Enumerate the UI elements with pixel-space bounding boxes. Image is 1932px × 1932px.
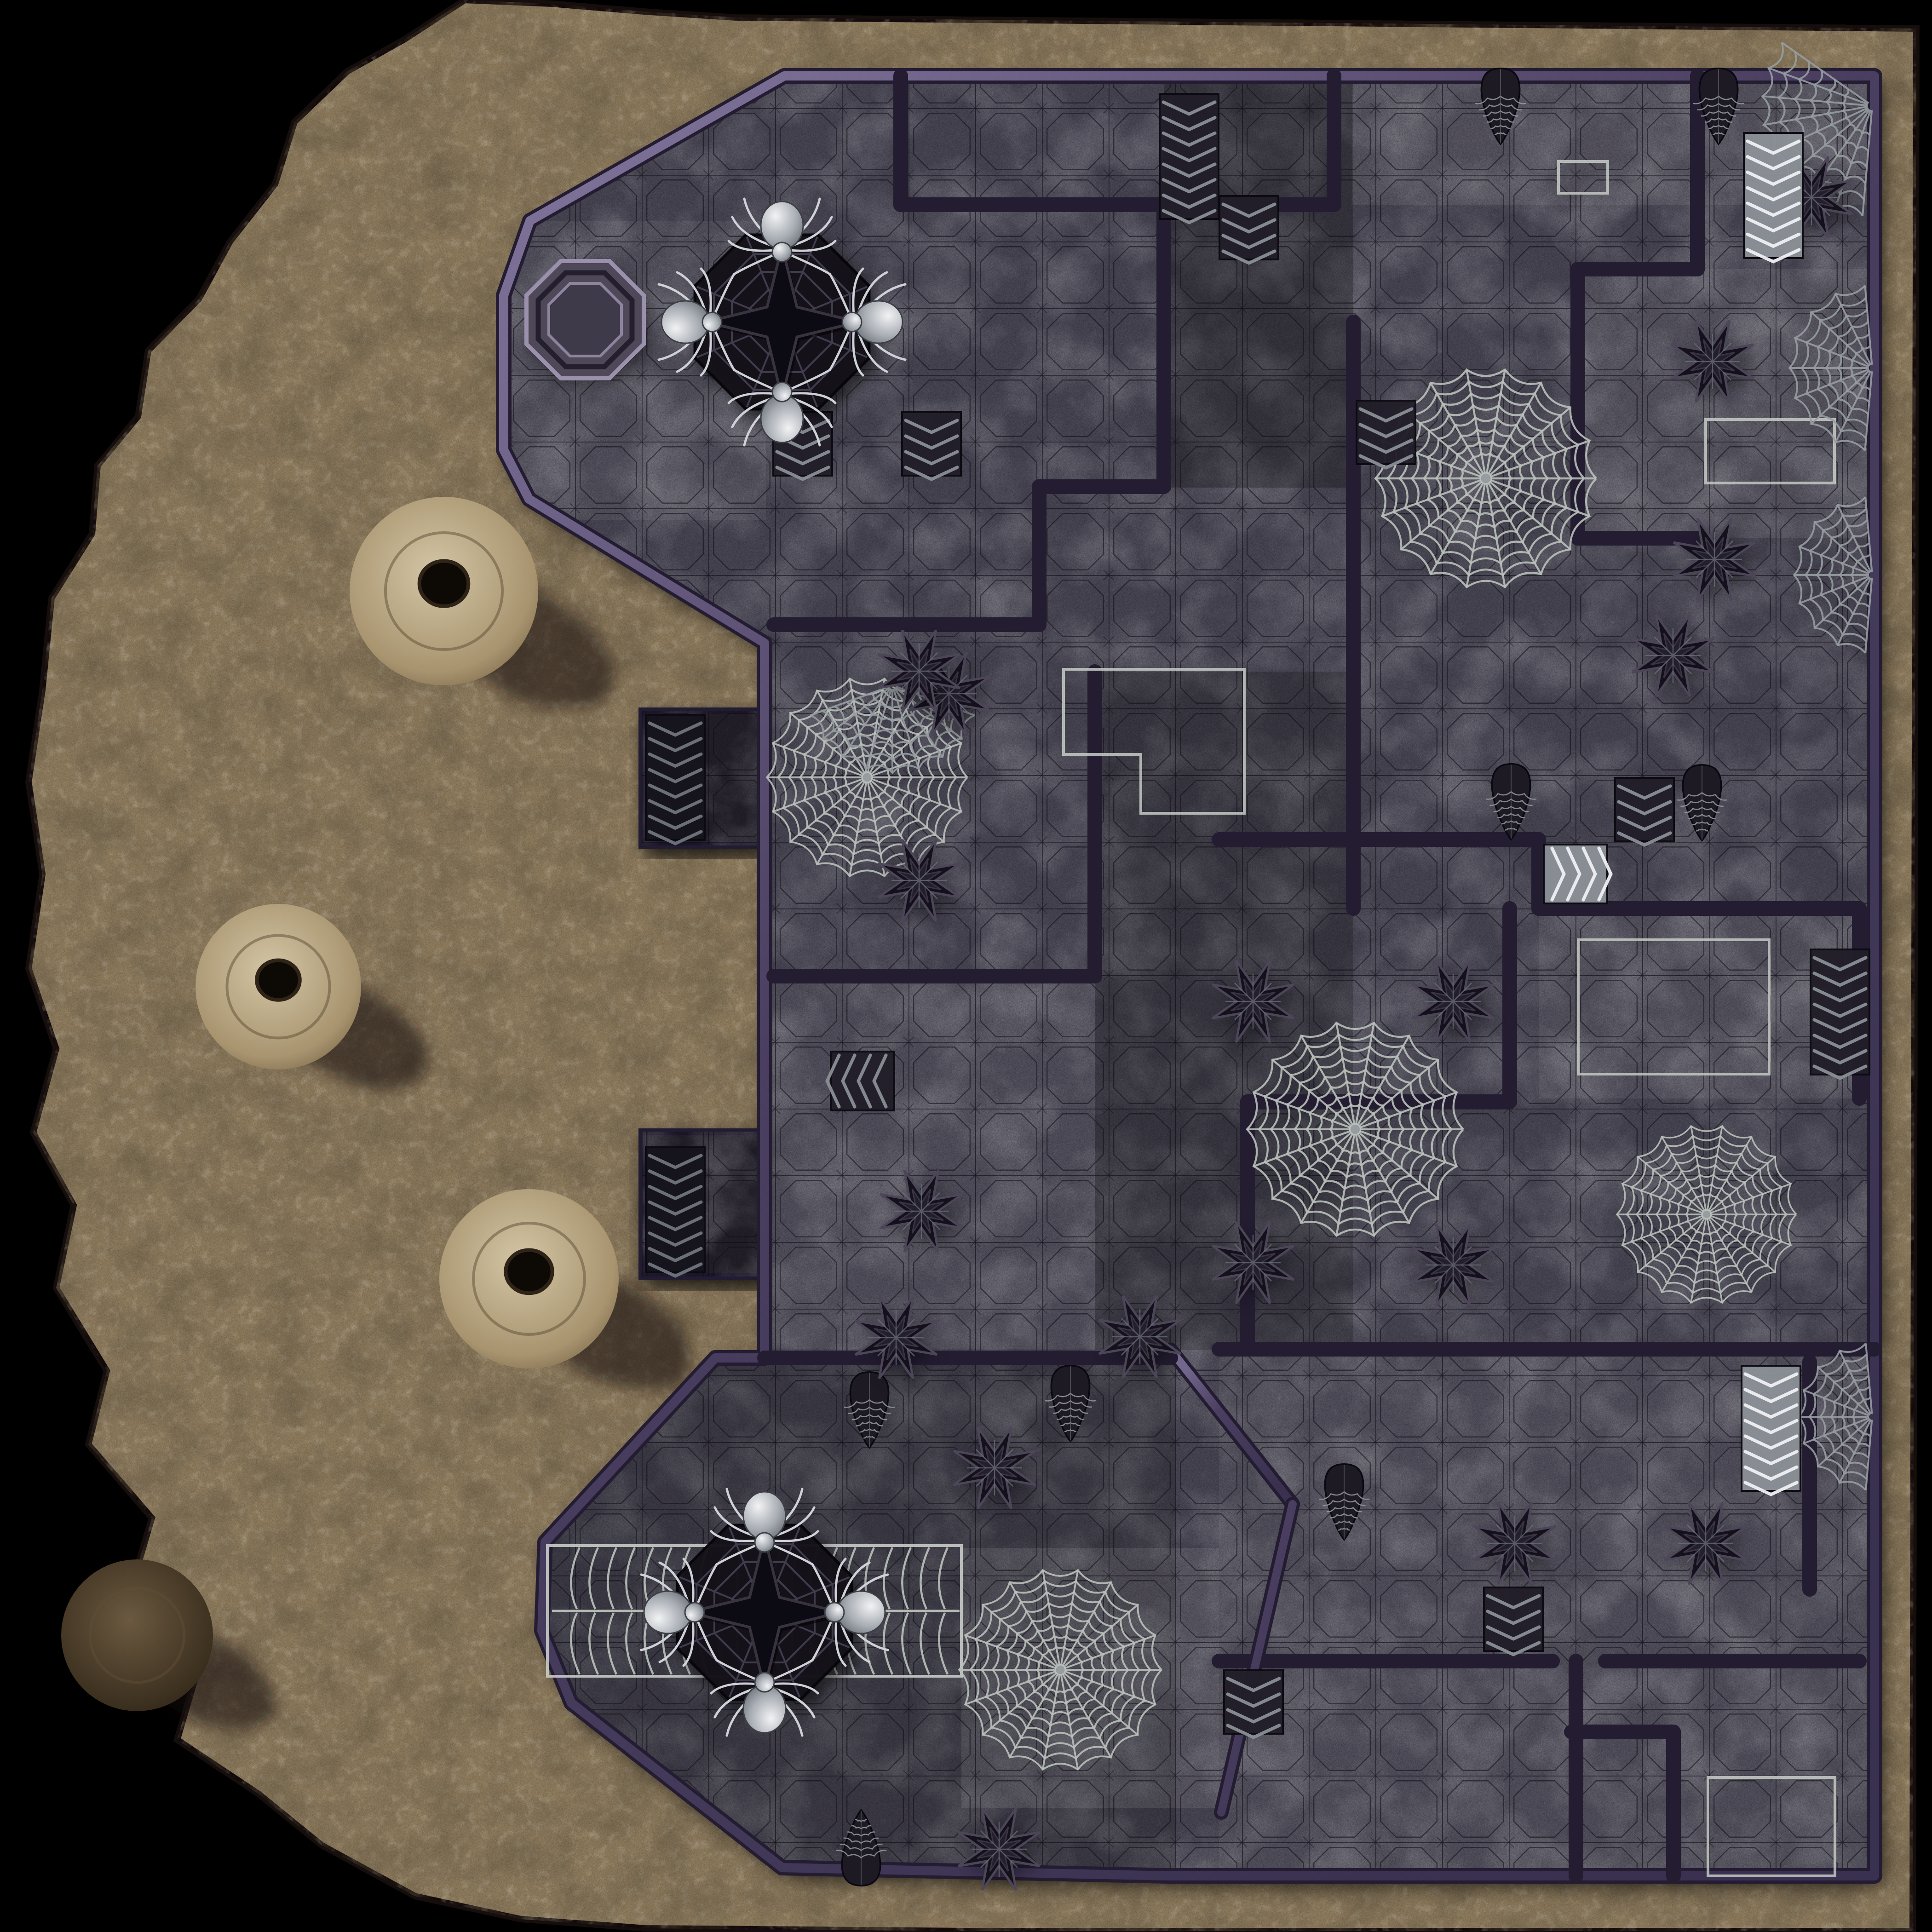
spider-head <box>772 242 792 262</box>
battle-map-stage <box>0 0 1932 1932</box>
stairs <box>1357 401 1415 468</box>
stairs <box>1744 133 1803 262</box>
stairs <box>827 1052 894 1110</box>
spider-head <box>755 1533 774 1552</box>
mound-hole <box>420 561 469 606</box>
mound-hole <box>257 960 300 1000</box>
spider-head <box>842 312 862 332</box>
spider-head <box>825 1603 844 1622</box>
stairs <box>1224 1670 1283 1737</box>
stairs <box>1484 1587 1543 1655</box>
mound-hole <box>506 1250 552 1294</box>
web-center <box>1702 1210 1711 1219</box>
web-center <box>1055 1665 1065 1675</box>
stairs <box>1811 949 1869 1078</box>
spider-head <box>772 382 792 402</box>
stairs <box>1742 1366 1800 1495</box>
spider-head <box>755 1673 774 1692</box>
web-center <box>1350 1124 1361 1135</box>
stairs <box>1160 94 1219 223</box>
spider-head <box>702 312 722 332</box>
stairs <box>1615 778 1674 845</box>
stairs <box>1544 845 1611 903</box>
spider-head <box>685 1603 704 1622</box>
web-center <box>862 772 872 782</box>
stairs <box>902 412 961 479</box>
web-center <box>1480 473 1491 484</box>
battle-map <box>0 0 1932 1932</box>
stairs <box>646 715 705 844</box>
stairs <box>1219 196 1278 263</box>
stairs <box>646 1147 705 1276</box>
well-basin <box>549 283 621 356</box>
mound-body <box>61 1559 213 1711</box>
